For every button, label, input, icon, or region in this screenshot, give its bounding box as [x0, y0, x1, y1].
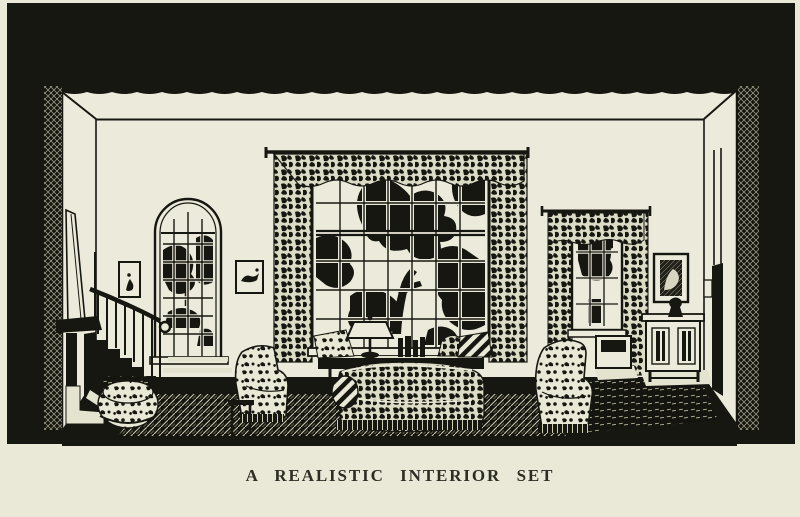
ottoman	[98, 380, 158, 428]
masking-shading-left	[44, 86, 62, 444]
framed-picture-center	[236, 261, 263, 293]
wing-chair-right	[536, 340, 593, 433]
right-valance	[548, 213, 644, 245]
masking-shading-right	[738, 86, 759, 444]
bolster-pillow	[332, 376, 358, 408]
book-page: A REALISTIC INTERIOR SET	[0, 0, 800, 517]
sofa-skirt	[336, 420, 482, 430]
switch-plate	[704, 280, 712, 297]
sofa	[332, 362, 484, 432]
framed-picture-left	[119, 262, 140, 297]
plate-caption: A REALISTIC INTERIOR SET	[0, 466, 800, 486]
arched-window	[150, 199, 228, 364]
ceiling	[62, 92, 737, 119]
main-window	[266, 147, 528, 362]
radiator	[594, 336, 638, 380]
interior-set-illustration	[0, 0, 800, 517]
framed-picture-right	[654, 254, 688, 302]
